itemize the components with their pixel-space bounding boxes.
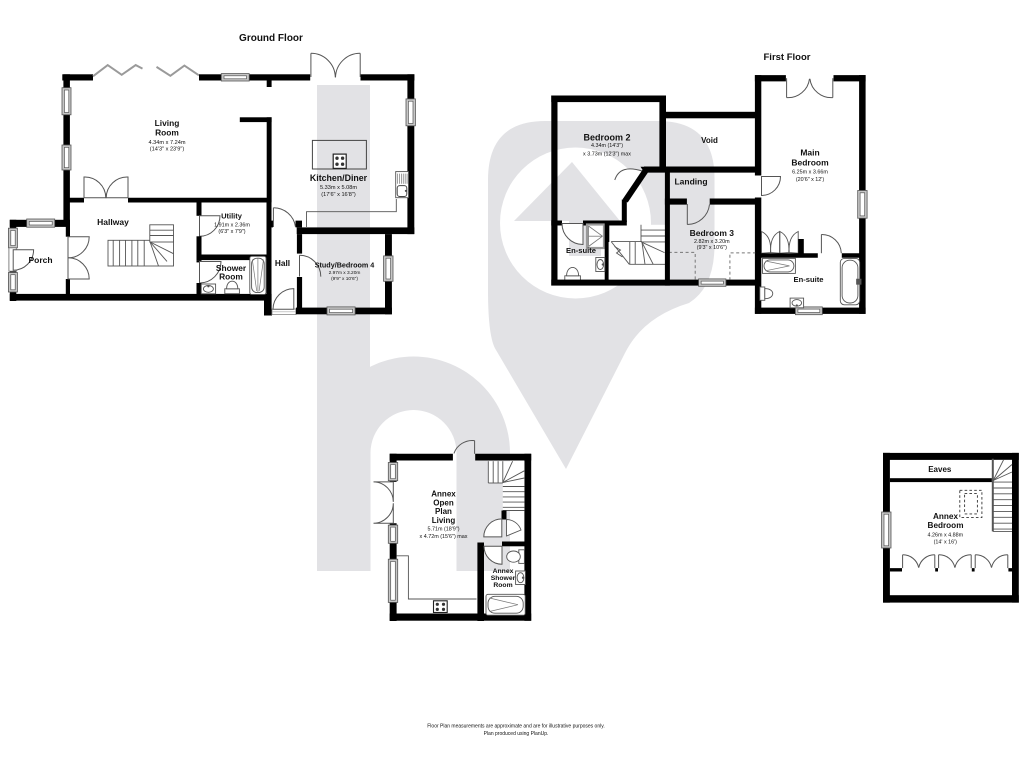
svg-text:(17'6" x 16'8"): (17'6" x 16'8") (321, 192, 356, 198)
svg-text:Annex: Annex (493, 568, 514, 575)
svg-text:Annex: Annex (933, 512, 958, 521)
svg-text:Room: Room (219, 272, 243, 282)
svg-text:First Floor: First Floor (764, 52, 811, 63)
svg-text:1.91m x 2.36m: 1.91m x 2.36m (214, 223, 250, 229)
svg-text:(6'3" x 7'9"): (6'3" x 7'9") (218, 229, 245, 235)
svg-text:2.82m x 3.20m: 2.82m x 3.20m (694, 239, 730, 245)
svg-text:Plan produced using PlanUp.: Plan produced using PlanUp. (484, 731, 549, 737)
svg-text:Bedroom 3: Bedroom 3 (690, 228, 735, 238)
svg-text:Void: Void (701, 136, 718, 145)
svg-text:4.26m x 4.88m: 4.26m x 4.88m (927, 532, 963, 538)
svg-text:Main: Main (800, 148, 819, 158)
svg-text:(20'6" x 12'): (20'6" x 12') (796, 177, 824, 183)
svg-text:x 3.73m (12'3") max: x 3.73m (12'3") max (583, 151, 631, 157)
svg-text:5.33m x 5.08m: 5.33m x 5.08m (320, 185, 357, 191)
svg-text:Annex: Annex (431, 490, 456, 499)
svg-text:Landing: Landing (674, 177, 707, 187)
svg-text:Room: Room (493, 582, 512, 589)
svg-text:Kitchen/Diner: Kitchen/Diner (310, 173, 368, 183)
svg-text:Open: Open (433, 499, 454, 508)
svg-text:En-suite: En-suite (566, 246, 596, 255)
svg-text:Eaves: Eaves (928, 465, 952, 474)
svg-text:Bedroom: Bedroom (928, 521, 964, 530)
svg-text:Utility: Utility (221, 212, 243, 221)
svg-text:Bedroom: Bedroom (791, 158, 829, 168)
svg-text:(14'3" x 23'9"): (14'3" x 23'9") (150, 147, 185, 153)
svg-text:2.97m x 3.20m: 2.97m x 3.20m (329, 270, 361, 276)
svg-text:Room: Room (155, 128, 179, 138)
svg-text:Study/Bedroom 4: Study/Bedroom 4 (315, 261, 375, 270)
svg-text:(9'9" x 10'6"): (9'9" x 10'6") (331, 276, 358, 282)
svg-text:Living: Living (432, 516, 456, 525)
svg-text:Hallway: Hallway (97, 217, 129, 227)
svg-text:x 4.72m (15'6") max: x 4.72m (15'6") max (420, 534, 468, 540)
svg-text:Living: Living (155, 118, 180, 128)
svg-text:Plan: Plan (435, 507, 452, 516)
svg-text:4.34m x 7.24m: 4.34m x 7.24m (149, 140, 186, 146)
svg-text:4.34m (14'3"): 4.34m (14'3") (591, 143, 623, 149)
svg-text:(14' x 16'): (14' x 16') (934, 539, 958, 545)
svg-text:5.71m (18'9"): 5.71m (18'9") (427, 527, 459, 533)
svg-text:Ground Floor: Ground Floor (239, 33, 303, 44)
svg-text:Bedroom 2: Bedroom 2 (583, 132, 630, 142)
svg-text:Shower: Shower (491, 575, 516, 582)
svg-text:En-suite: En-suite (794, 275, 824, 284)
svg-text:(9'3" x 10'6"): (9'3" x 10'6") (697, 245, 727, 251)
svg-text:Hall: Hall (275, 258, 290, 268)
svg-text:6.25m x 3.66m: 6.25m x 3.66m (792, 170, 828, 176)
svg-text:Porch: Porch (28, 255, 52, 265)
svg-text:Floor Plan measurements are ap: Floor Plan measurements are approximate … (427, 724, 605, 730)
